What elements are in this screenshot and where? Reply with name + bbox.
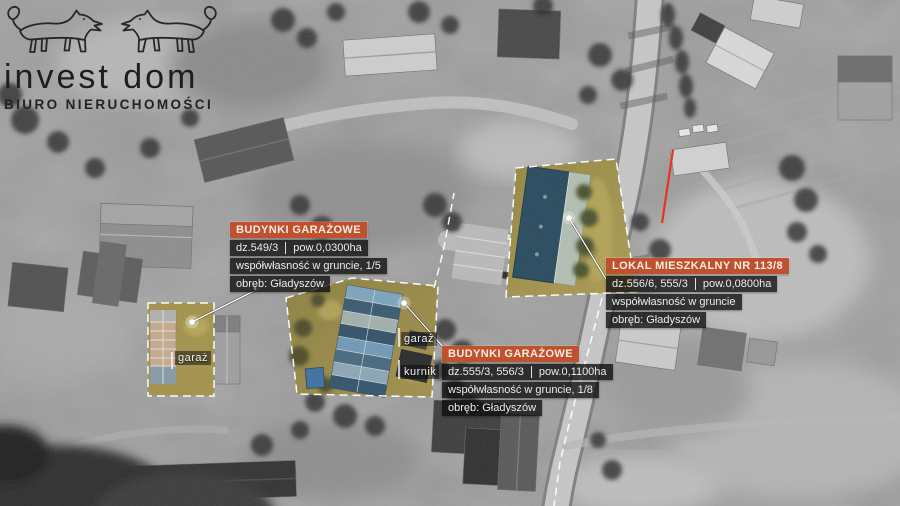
brand-tagline: BIURO NIERUCHOMOŚCI (4, 97, 264, 112)
annotation-plot-area: dz.556/6, 555/3 pow.0,0800ha (606, 276, 777, 292)
brand-name: invest dom (4, 60, 264, 94)
annotation-title: BUDYNKI GARAŻOWE (230, 222, 367, 238)
district-info: obręb: Gładyszów (606, 312, 706, 328)
district-info: obręb: Gładyszów (442, 400, 542, 416)
district-info: obręb: Gładyszów (230, 276, 330, 292)
ownership-info: współwłasność w gruncie (606, 294, 742, 310)
plot-number: dz.549/3 (236, 242, 278, 254)
brand-logo: invest dom BIURO NIERUCHOMOŚCI (4, 2, 264, 112)
plot-area: pow.0,0800ha (695, 278, 772, 290)
plot-number: dz.555/3, 556/3 (448, 366, 524, 378)
annotation-title: LOKAL MIESZKALNY NR 113/8 (606, 258, 789, 274)
twin-lions-icon (4, 2, 220, 58)
map-label-garage-left: garaż (175, 351, 211, 365)
map-label-garage-center: garaż (401, 332, 437, 346)
map-label-henhouse: kurnik (401, 365, 439, 379)
annotation-garages-2: BUDYNKI GARAŻOWE dz.555/3, 556/3 pow.0,1… (442, 346, 613, 416)
ownership-info: współwłasność w gruncie, 1/5 (230, 258, 387, 274)
listing-aerial-image: invest dom BIURO NIERUCHOMOŚCI BUDYNKI G… (0, 0, 900, 506)
plot-area: pow.0,0300ha (285, 242, 362, 254)
plot-area: pow.0,1100ha (531, 366, 607, 378)
annotation-plot-area: dz.555/3, 556/3 pow.0,1100ha (442, 364, 613, 380)
annotation-title: BUDYNKI GARAŻOWE (442, 346, 579, 362)
ownership-info: współwłasność w gruncie, 1/8 (442, 382, 599, 398)
plot-number: dz.556/6, 555/3 (612, 278, 688, 290)
annotation-apartment: LOKAL MIESZKALNY NR 113/8 dz.556/6, 555/… (606, 258, 789, 328)
annotation-plot-area: dz.549/3 pow.0,0300ha (230, 240, 368, 256)
annotation-garages-1: BUDYNKI GARAŻOWE dz.549/3 pow.0,0300ha w… (230, 222, 387, 292)
